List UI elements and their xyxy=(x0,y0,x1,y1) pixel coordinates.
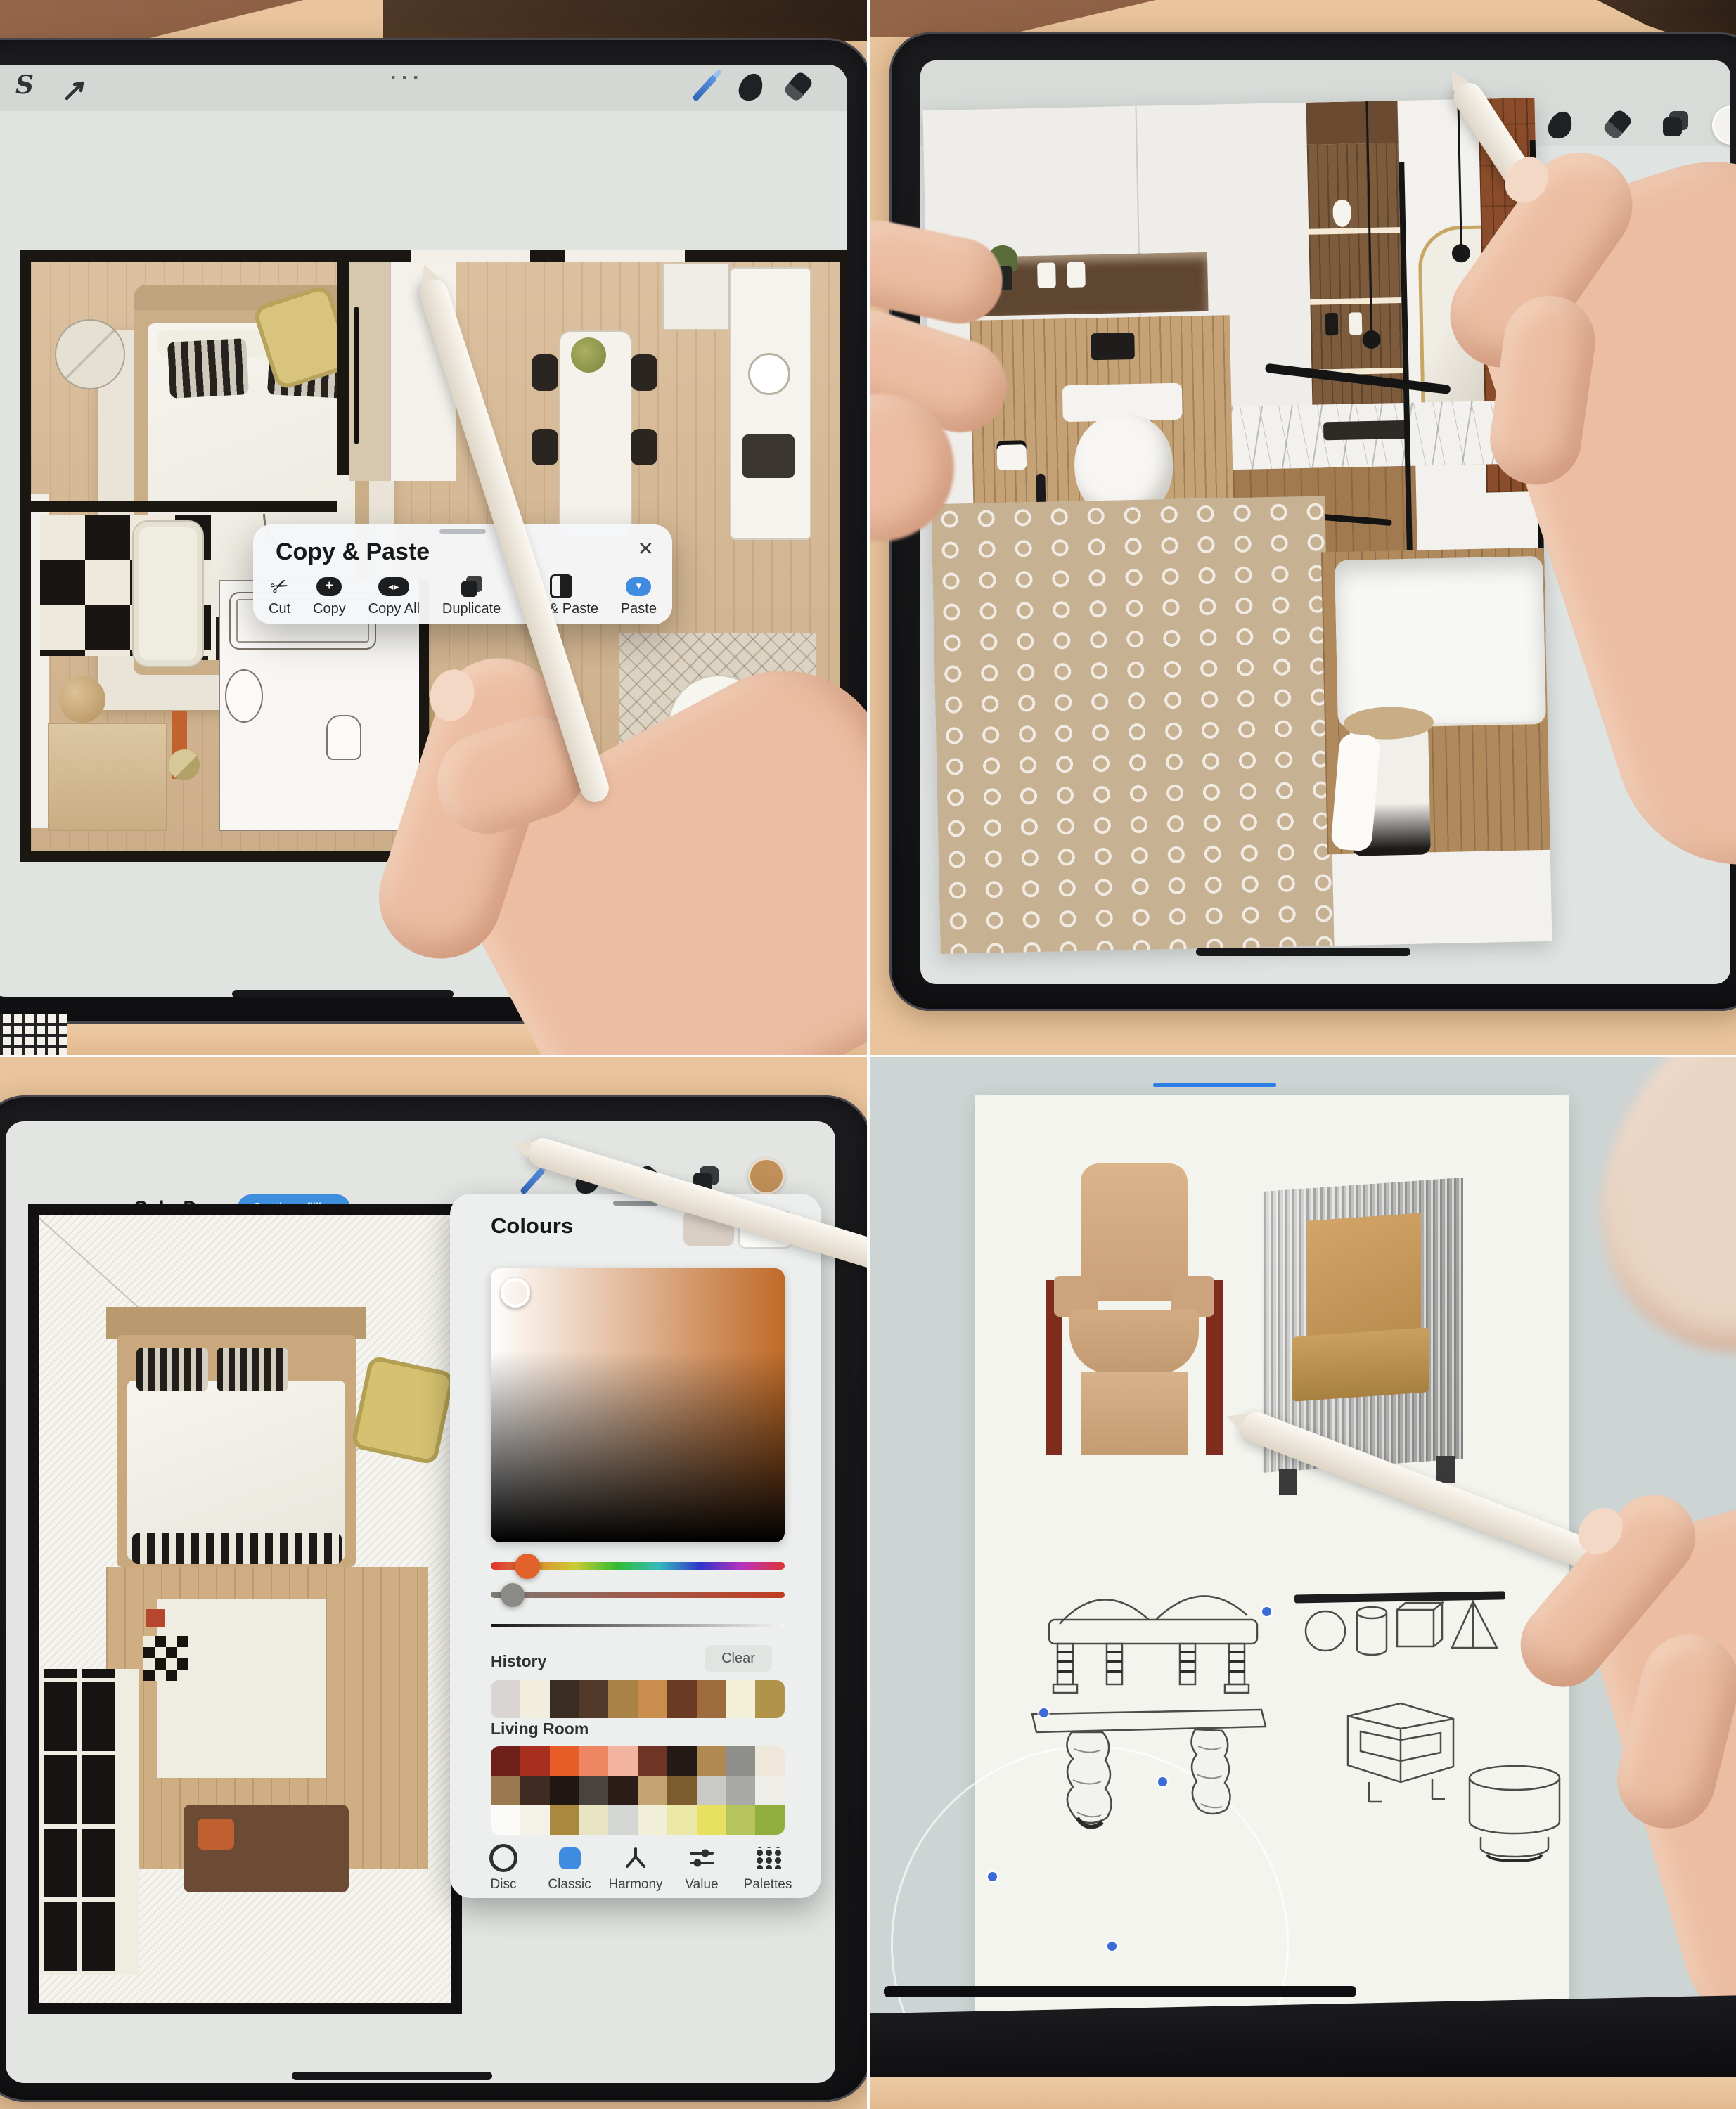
value-mode-icon xyxy=(688,1845,715,1871)
cardboard-dark xyxy=(383,0,867,41)
saturation-brightness-box[interactable] xyxy=(491,1268,785,1542)
red-accent xyxy=(146,1609,165,1627)
close-icon[interactable]: ✕ xyxy=(638,537,654,560)
plant xyxy=(571,337,606,373)
palette-swatch[interactable] xyxy=(550,1746,579,1776)
disc-mode-icon xyxy=(489,1845,517,1871)
tab-harmony[interactable]: Harmony xyxy=(603,1845,668,1892)
kitchen-counter xyxy=(730,267,811,540)
copy-all-icon: ◂▸ xyxy=(378,577,409,596)
history-swatch[interactable] xyxy=(638,1680,667,1718)
dining-chair-4 xyxy=(631,429,657,465)
palette-swatch[interactable] xyxy=(550,1776,579,1805)
selection-pin[interactable] xyxy=(988,1872,997,1881)
wall-horizontal xyxy=(31,501,337,512)
duplicate-icon xyxy=(461,576,482,597)
history-swatch[interactable] xyxy=(491,1680,520,1718)
palette-swatch[interactable] xyxy=(608,1746,638,1776)
pillow-right xyxy=(217,1348,288,1391)
palette-swatch[interactable] xyxy=(520,1776,550,1805)
copy-paste-item-label: Cut xyxy=(269,601,290,617)
window-frame xyxy=(39,1669,118,1975)
palette-swatch[interactable] xyxy=(579,1776,608,1805)
pillow-left xyxy=(136,1348,208,1391)
toilet-outline xyxy=(326,715,361,760)
copy-icon: + xyxy=(316,577,342,596)
popup-title: Copy & Paste xyxy=(276,538,430,566)
selection-pin[interactable] xyxy=(1262,1607,1271,1616)
palette-swatch[interactable] xyxy=(608,1805,638,1835)
palette-swatch[interactable] xyxy=(579,1746,608,1776)
shelf-bottle-2 xyxy=(1349,312,1363,335)
home-indicator[interactable] xyxy=(1196,948,1410,956)
copy-paste-item-label: Copy All xyxy=(368,601,420,617)
toilet-paper xyxy=(997,444,1027,470)
sink-basin xyxy=(1323,420,1408,441)
screen-bottom-bar xyxy=(884,1986,1356,1997)
canvas-menu-dots[interactable]: ··· xyxy=(390,66,424,90)
wall-vertical xyxy=(337,262,349,475)
palette-swatch[interactable] xyxy=(491,1776,520,1805)
palette-swatch[interactable] xyxy=(697,1776,726,1805)
palette-swatch[interactable] xyxy=(755,1746,785,1776)
history-swatch[interactable] xyxy=(726,1680,755,1718)
tab-label: Classic xyxy=(548,1877,591,1892)
home-indicator[interactable] xyxy=(292,2072,492,2080)
popup-drag-handle[interactable] xyxy=(439,529,486,534)
tab-disc[interactable]: Disc xyxy=(471,1845,536,1892)
panel-colours: ColorDrop Continue filling xyxy=(0,1057,867,2109)
vase xyxy=(59,676,105,723)
palette-grid xyxy=(491,1746,785,1835)
palette-swatch[interactable] xyxy=(697,1805,726,1835)
tab-label: Harmony xyxy=(608,1877,662,1892)
palette-swatch[interactable] xyxy=(697,1746,726,1776)
pattern-paper xyxy=(0,1014,67,1054)
palette-swatch[interactable] xyxy=(726,1776,755,1805)
copy-paste-item-copy-all[interactable]: ◂▸Copy All xyxy=(368,575,420,617)
selection-pin[interactable] xyxy=(1107,1942,1117,1951)
palette-swatch[interactable] xyxy=(579,1805,608,1835)
history-swatch[interactable] xyxy=(520,1680,550,1718)
fridge xyxy=(662,263,730,330)
dining-chair-1 xyxy=(532,354,558,391)
palette-row xyxy=(491,1746,785,1776)
curtain xyxy=(118,1669,139,1975)
tab-label: Palettes xyxy=(744,1877,792,1892)
tab-classic[interactable]: Classic xyxy=(537,1845,602,1892)
history-swatch[interactable] xyxy=(608,1680,638,1718)
palette-swatch[interactable] xyxy=(667,1805,697,1835)
history-swatch[interactable] xyxy=(755,1680,785,1718)
copy-paste-item-duplicate[interactable]: Duplicate xyxy=(442,575,501,617)
palette-swatch[interactable] xyxy=(667,1776,697,1805)
living-sofa xyxy=(132,520,204,667)
kitchen-sink xyxy=(748,353,790,395)
history-swatch[interactable] xyxy=(550,1680,579,1718)
palette-swatch[interactable] xyxy=(491,1805,520,1835)
palette-swatch[interactable] xyxy=(550,1805,579,1835)
desk-surface xyxy=(870,2077,1736,2109)
area-rug xyxy=(157,1599,326,1778)
bolster xyxy=(132,1533,342,1564)
side-chair xyxy=(350,1355,455,1466)
saturation-slider[interactable] xyxy=(491,1592,785,1598)
history-swatch[interactable] xyxy=(667,1680,697,1718)
wardrobe-handle xyxy=(354,307,359,444)
harmony-mode-icon xyxy=(624,1845,648,1871)
palette-swatch[interactable] xyxy=(638,1776,667,1805)
cut-paste-icon xyxy=(550,574,572,598)
classic-mode-icon xyxy=(559,1845,581,1871)
cardboard-piece-left xyxy=(870,0,1736,37)
scissors-icon: ✂ xyxy=(266,572,292,601)
copy-paste-item-label: Duplicate xyxy=(442,601,501,617)
history-swatch[interactable] xyxy=(697,1680,726,1718)
paste-icon: ▾ xyxy=(626,577,651,596)
bathtub xyxy=(1335,556,1546,725)
copy-paste-item-label: Copy xyxy=(313,601,346,617)
colours-panel: Colours History Clear Living Room DiscCl… xyxy=(450,1194,821,1898)
copy-paste-item-copy[interactable]: +Copy xyxy=(313,575,346,617)
round-side-table xyxy=(55,319,125,389)
palette-row xyxy=(491,1805,785,1835)
wood-header xyxy=(1306,101,1398,145)
pendant-cord-2 xyxy=(1457,99,1462,247)
palette-swatch[interactable] xyxy=(726,1746,755,1776)
palettes-mode-icon xyxy=(754,1845,782,1871)
shelf-bottle-1 xyxy=(1325,313,1339,335)
window-top-1 xyxy=(411,250,530,262)
transform-tool-icon[interactable] xyxy=(60,75,91,105)
niche-cup-2 xyxy=(1067,262,1086,288)
palette-swatch[interactable] xyxy=(755,1805,785,1835)
palette-swatch[interactable] xyxy=(755,1776,785,1805)
tab-palettes[interactable]: Palettes xyxy=(735,1845,800,1892)
checker-tile xyxy=(143,1636,188,1681)
bed-pillow-left xyxy=(167,338,249,399)
dining-chair-3 xyxy=(631,354,657,391)
tab-value[interactable]: Value xyxy=(669,1845,734,1892)
kitchen-hob xyxy=(742,434,795,478)
copy-paste-item-cut[interactable]: ✂Cut xyxy=(269,575,290,617)
room-artwork xyxy=(28,1204,462,2014)
color-picker-ring[interactable] xyxy=(501,1278,530,1308)
history-row xyxy=(491,1680,785,1718)
colours-title: Colours xyxy=(491,1213,573,1239)
panel-bathroom-render xyxy=(870,0,1736,1054)
colours-tabbar: DiscClassicHarmonyValuePalettes xyxy=(471,1845,800,1892)
palette-swatch[interactable] xyxy=(608,1776,638,1805)
bathroom-photo xyxy=(923,98,1552,954)
history-swatch[interactable] xyxy=(579,1680,608,1718)
copy-paste-item-paste[interactable]: ▾Paste xyxy=(621,575,657,617)
palette-swatch[interactable] xyxy=(638,1746,667,1776)
clear-history-button[interactable]: Clear xyxy=(705,1645,772,1672)
headboard xyxy=(106,1307,366,1339)
history-label: History xyxy=(491,1652,546,1671)
selection-tool-icon[interactable]: S xyxy=(15,70,34,100)
brush-tool-icon[interactable] xyxy=(520,1167,546,1195)
sideboard xyxy=(48,723,167,831)
window-top-2 xyxy=(565,250,685,262)
home-indicator[interactable] xyxy=(232,990,454,997)
sink-outline xyxy=(225,669,263,723)
brightness-slider[interactable] xyxy=(491,1624,785,1627)
dining-chair-2 xyxy=(532,429,558,465)
panel-floorplan: S ··· xyxy=(0,0,867,1054)
copy-paste-popup: Copy & Paste ✕ ✂Cut+Copy◂▸Copy AllDuplic… xyxy=(253,524,672,624)
active-color-swatch[interactable] xyxy=(748,1158,785,1194)
saturation-knob[interactable] xyxy=(501,1583,525,1607)
floor-tiles xyxy=(931,496,1334,954)
copy-paste-items: ✂Cut+Copy◂▸Copy AllDuplicateCut & Paste▾… xyxy=(269,575,657,617)
tab-label: Value xyxy=(685,1877,718,1892)
selection-pin[interactable] xyxy=(1158,1777,1167,1786)
palette-swatch[interactable] xyxy=(520,1746,550,1776)
palette-swatch[interactable] xyxy=(667,1746,697,1776)
clear-label: Clear xyxy=(721,1651,755,1667)
hue-knob[interactable] xyxy=(515,1554,540,1579)
palette-row xyxy=(491,1776,785,1805)
sofa-pillow xyxy=(198,1819,234,1850)
palette-swatch[interactable] xyxy=(726,1805,755,1835)
selection-pin[interactable] xyxy=(1039,1708,1048,1717)
ball-stool xyxy=(169,749,200,780)
palette-swatch[interactable] xyxy=(638,1805,667,1835)
copy-paste-item-label: Paste xyxy=(621,601,657,617)
flush-plate xyxy=(1091,333,1135,360)
tab-label: Disc xyxy=(491,1877,517,1892)
palette-swatch[interactable] xyxy=(491,1746,520,1776)
layers-icon[interactable] xyxy=(1663,111,1688,136)
palette-name-label: Living Room xyxy=(491,1720,589,1739)
palette-swatch[interactable] xyxy=(520,1805,550,1835)
niche-cup-1 xyxy=(1037,262,1056,288)
four-panel-collage: S ··· xyxy=(0,0,1736,2109)
panel-sketch-page xyxy=(870,1057,1736,2109)
